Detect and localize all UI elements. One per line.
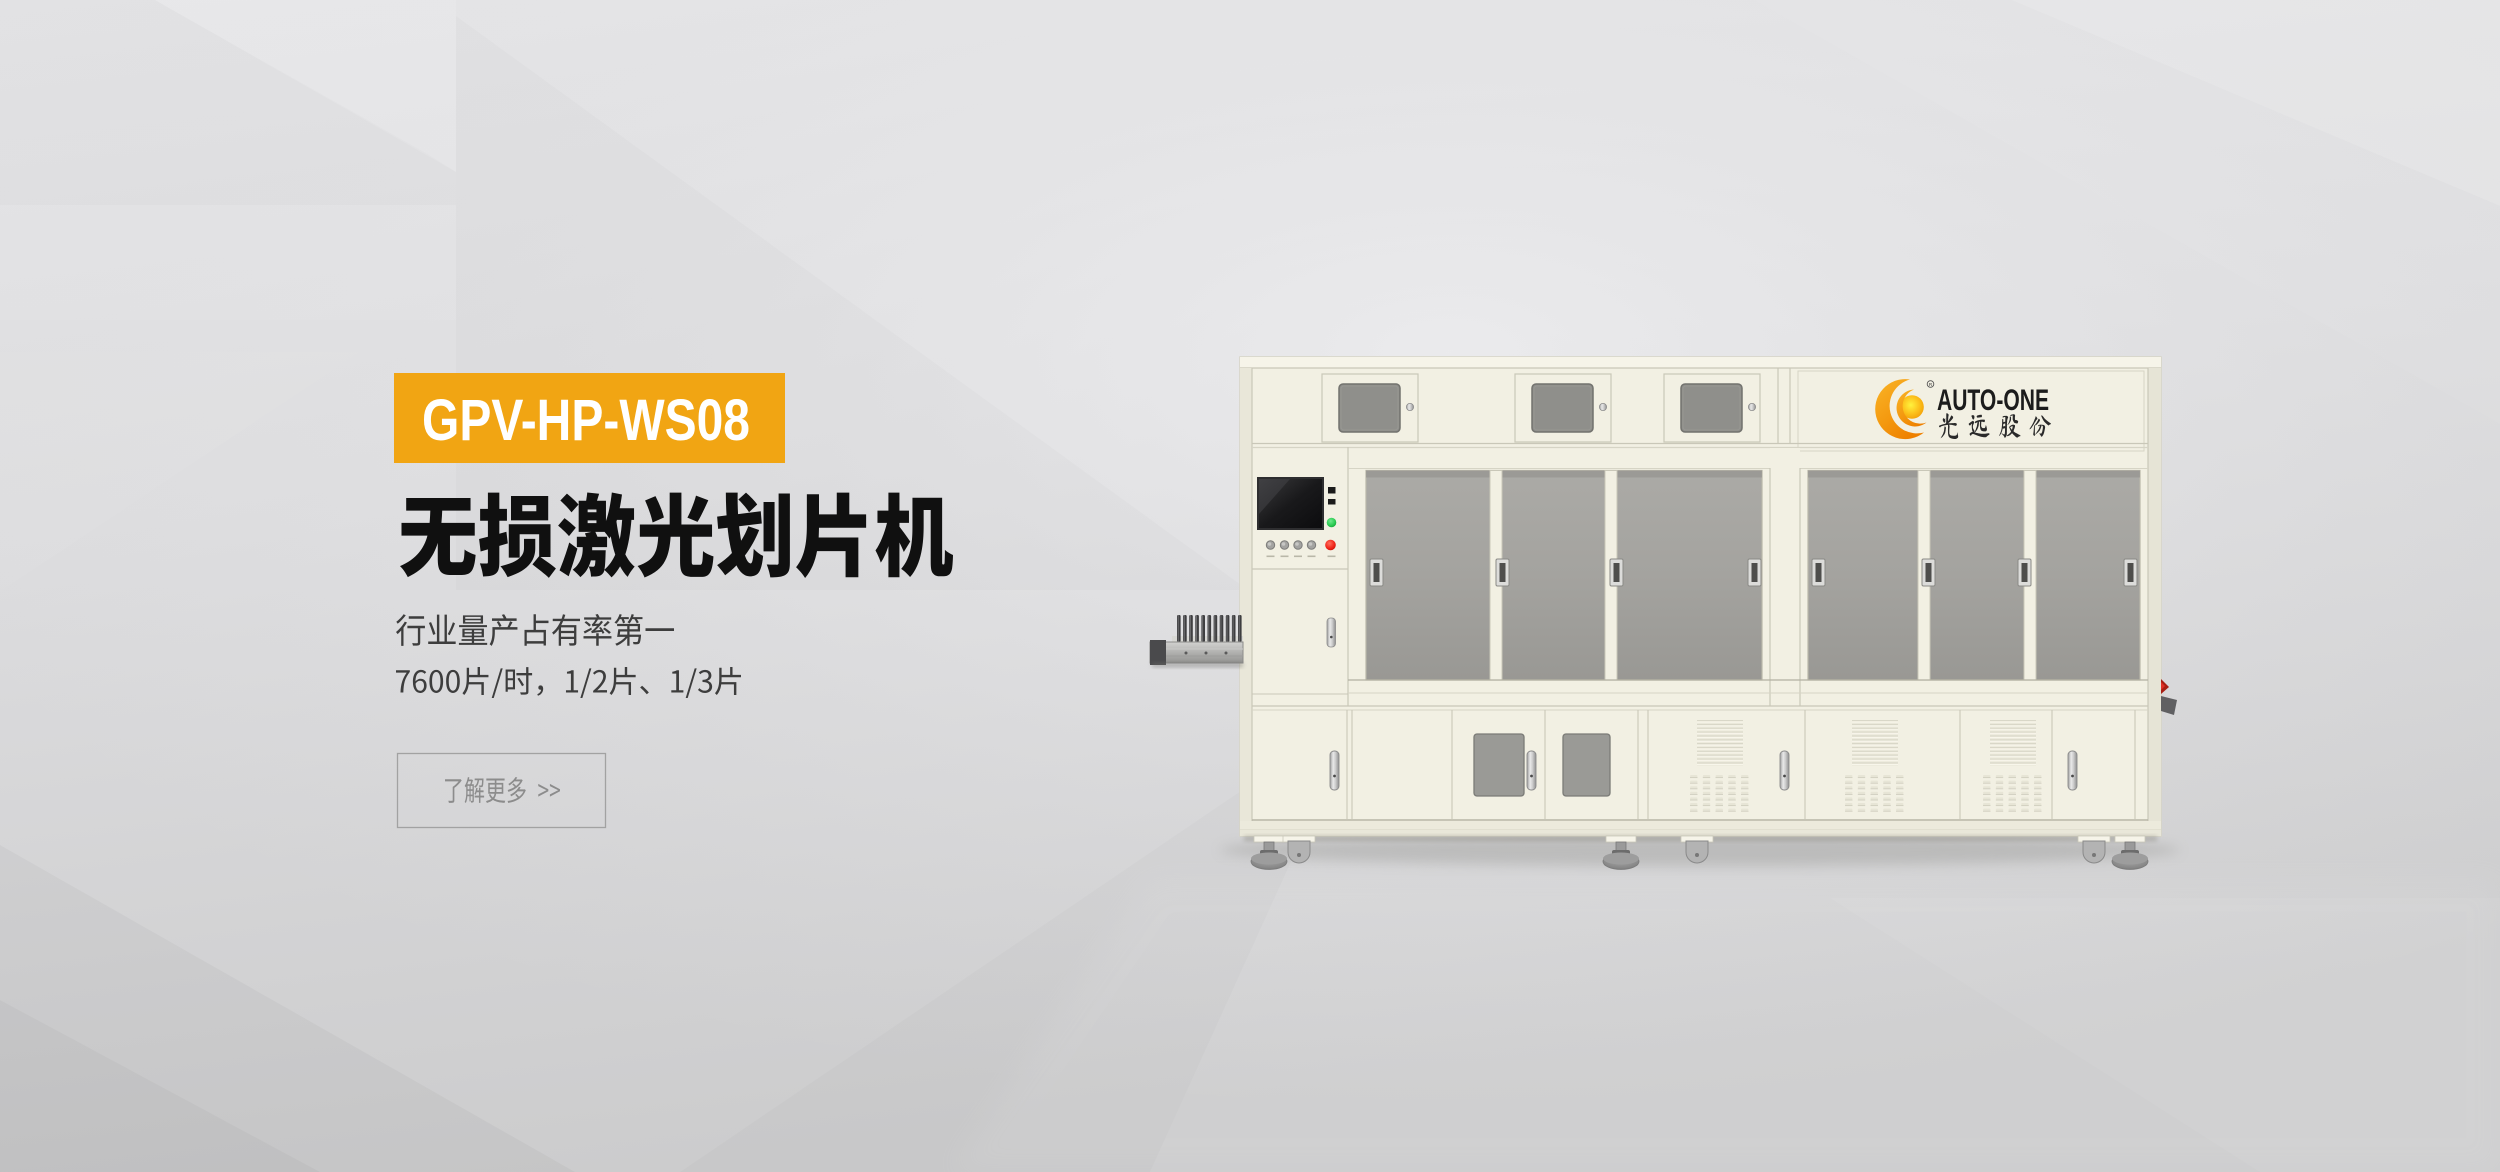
svg-text:GPV-HP-WS08: GPV-HP-WS08 — [422, 388, 750, 453]
svg-text:AUTO-ONE: AUTO-ONE — [1937, 384, 2049, 417]
